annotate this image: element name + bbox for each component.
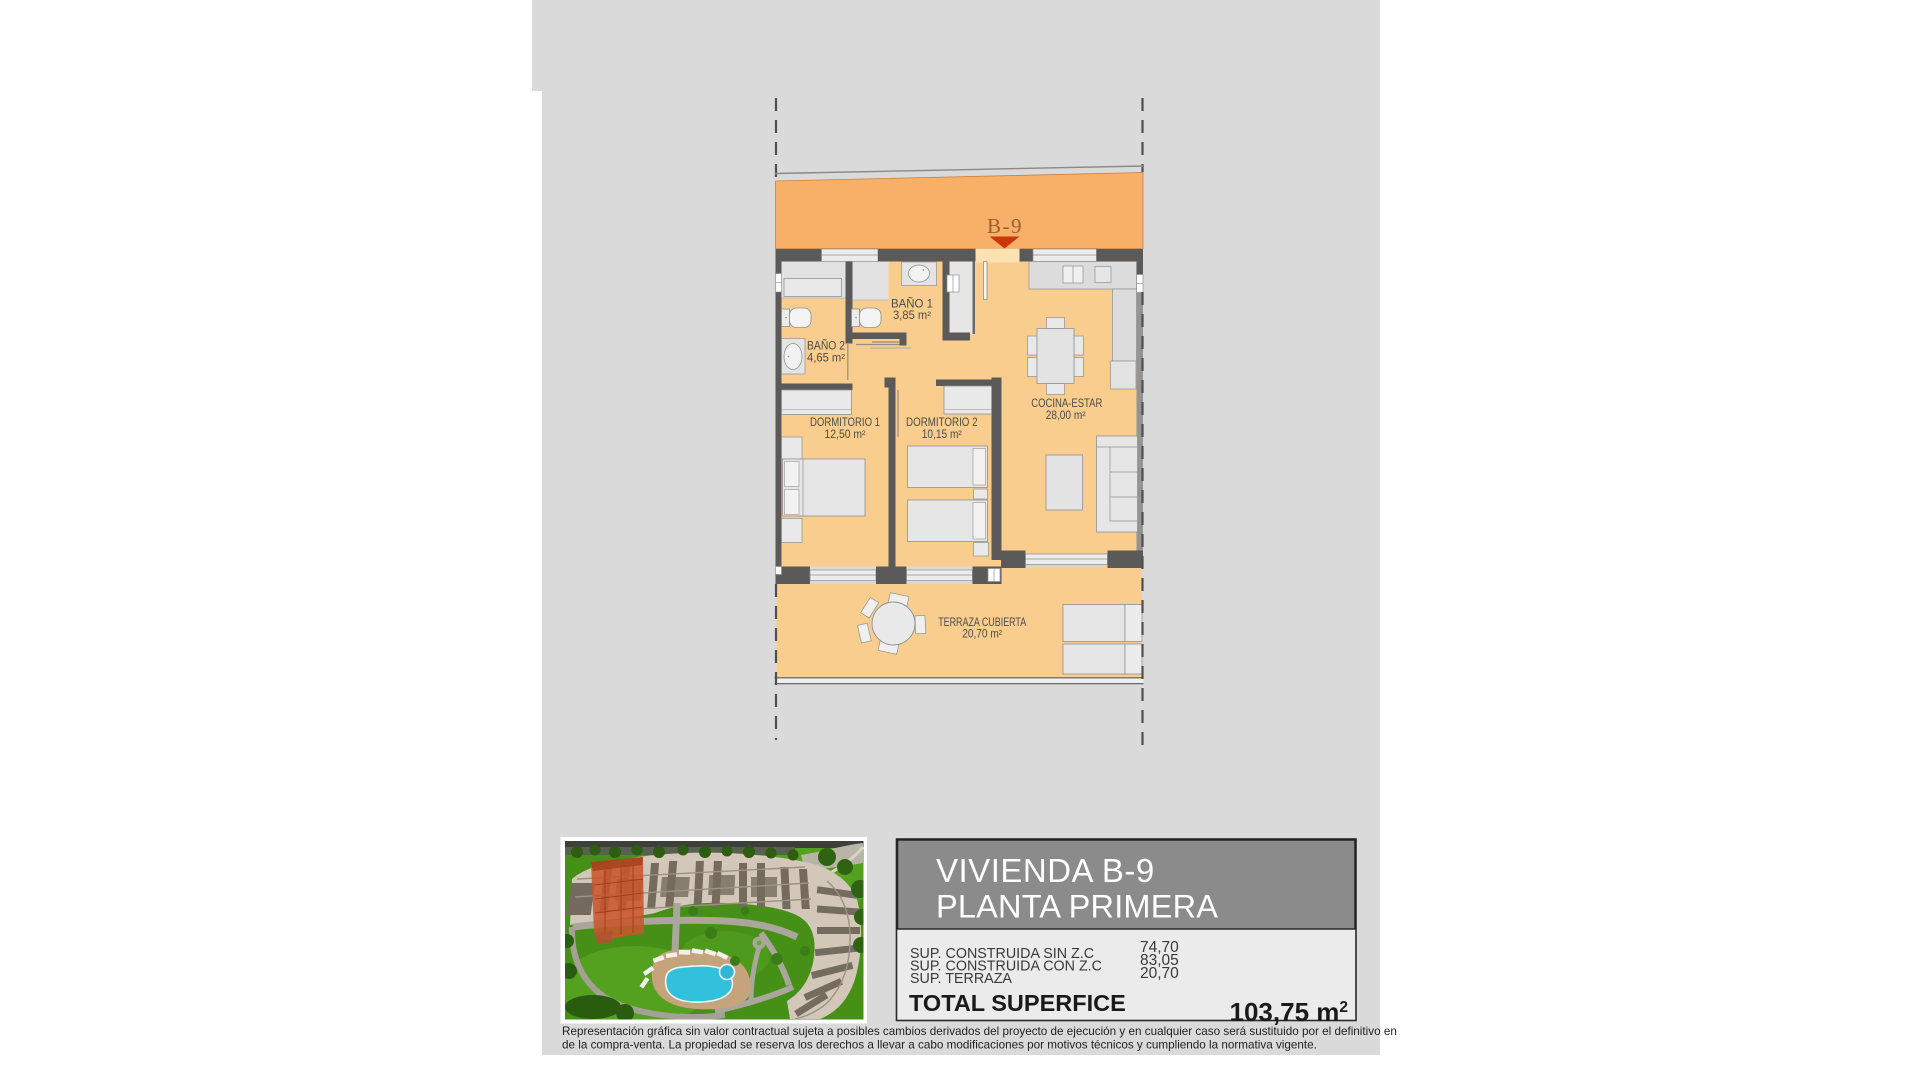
svg-text:PLANTA PRIMERA: PLANTA PRIMERA xyxy=(936,889,1218,925)
svg-text:3,85 m²: 3,85 m² xyxy=(893,310,931,322)
svg-text:DORMITORIO 1: DORMITORIO 1 xyxy=(810,417,880,429)
svg-text:28,00 m²: 28,00 m² xyxy=(1046,410,1086,422)
svg-text:BAÑO 2: BAÑO 2 xyxy=(807,340,845,353)
svg-text:COCINA-ESTAR: COCINA-ESTAR xyxy=(1031,398,1102,410)
svg-text:103,75 m2: 103,75 m2 xyxy=(1230,997,1349,1027)
svg-text:TOTAL SUPERFICE: TOTAL SUPERFICE xyxy=(909,990,1126,1016)
svg-text:DORMITORIO 2: DORMITORIO 2 xyxy=(906,417,978,429)
svg-text:10,15 m²: 10,15 m² xyxy=(922,429,962,441)
svg-text:BAÑO 1: BAÑO 1 xyxy=(891,298,933,311)
svg-text:12,50 m²: 12,50 m² xyxy=(825,429,866,441)
svg-text:SUP. TERRAZA: SUP. TERRAZA xyxy=(910,971,1012,987)
svg-text:VIVIENDA B-9: VIVIENDA B-9 xyxy=(936,852,1155,889)
svg-text:20,70 m²: 20,70 m² xyxy=(962,628,1002,640)
svg-text:de la compra-venta. La propied: de la compra-venta. La propiedad se rese… xyxy=(562,1039,1317,1052)
svg-text:Representación gráfica sin val: Representación gráfica sin valor contrac… xyxy=(562,1025,1397,1038)
svg-text:B-9: B-9 xyxy=(987,214,1023,238)
svg-text:20,70: 20,70 xyxy=(1140,965,1179,982)
svg-text:TERRAZA CUBIERTA: TERRAZA CUBIERTA xyxy=(938,617,1026,629)
svg-text:4,65 m²: 4,65 m² xyxy=(807,353,845,365)
